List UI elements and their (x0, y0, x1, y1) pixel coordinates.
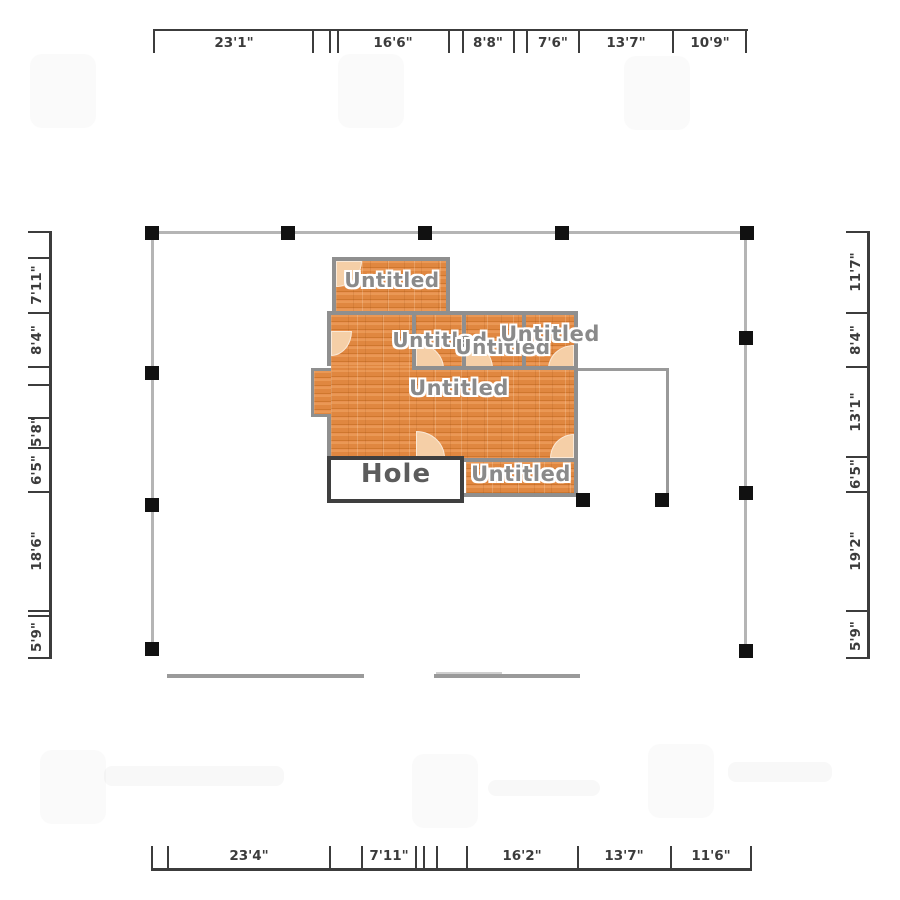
room-label[interactable]: Untitled (409, 376, 509, 400)
annex-wall-line[interactable] (666, 368, 669, 496)
watermark-text (488, 780, 600, 796)
dim-label: 11'7" (848, 237, 864, 307)
dim-label: 13'7" (582, 848, 666, 864)
wall[interactable] (327, 414, 331, 458)
dim-label: 23'4" (207, 848, 291, 864)
dim-label: 13'1" (848, 377, 864, 447)
bottom-wall-segment[interactable] (434, 674, 580, 678)
selection-handle[interactable] (145, 226, 159, 240)
dim-tick (312, 29, 314, 53)
dim-label: 5'9" (29, 602, 45, 672)
dim-tick (28, 231, 50, 233)
wall[interactable] (446, 257, 450, 313)
dim-label: 23'1" (192, 35, 276, 51)
dim-label: 16'2" (480, 848, 564, 864)
wall[interactable] (332, 257, 450, 261)
room-floor-main-protrusion[interactable] (314, 371, 331, 414)
dim-label: 8'4" (29, 305, 45, 375)
dim-tick (167, 846, 169, 868)
selection-handle[interactable] (739, 644, 753, 658)
dim-tick (436, 846, 438, 868)
bottom-wall-segment[interactable] (167, 674, 364, 678)
selection-handle[interactable] (740, 226, 754, 240)
watermark-text (728, 762, 832, 782)
watermark-logo (412, 754, 478, 828)
dim-label: 13'7" (584, 35, 668, 51)
floorplan-canvas: 23'1" 16'6" 8'8" 7'6" 13'7" 10'9" 23'4" … (0, 0, 900, 900)
dim-label: 7'11" (347, 848, 431, 864)
selection-handle[interactable] (145, 642, 159, 656)
wall[interactable] (412, 366, 574, 370)
dim-baseline (49, 231, 52, 659)
selection-line-left[interactable] (151, 231, 154, 645)
dim-tick (466, 846, 468, 868)
dim-baseline (153, 29, 748, 31)
wall[interactable] (332, 257, 336, 313)
watermark-logo (648, 744, 714, 818)
dim-label: 8'4" (848, 305, 864, 375)
room-label[interactable]: Untitled (471, 462, 571, 486)
room-label[interactable]: Untitled (344, 268, 439, 292)
selection-handle[interactable] (655, 493, 669, 507)
dim-label: 6'5" (848, 439, 864, 509)
watermark-logo (338, 54, 404, 128)
dim-label: 16'6" (351, 35, 435, 51)
wall[interactable] (464, 493, 576, 497)
dim-label: 18'6" (29, 516, 45, 586)
dim-tick (151, 846, 153, 868)
room-label[interactable]: Untitled (500, 322, 600, 346)
selection-handle[interactable] (576, 493, 590, 507)
watermark-logo (624, 56, 690, 130)
annex-wall-line[interactable] (576, 368, 668, 371)
selection-line-top[interactable] (151, 231, 749, 234)
hole-label[interactable]: Hole (361, 459, 431, 489)
dim-tick (846, 231, 868, 233)
selection-handle[interactable] (739, 486, 753, 500)
selection-handle[interactable] (145, 366, 159, 380)
dim-tick (153, 29, 155, 53)
dim-baseline (151, 868, 752, 871)
dim-label: 19'2" (848, 516, 864, 586)
selection-line-right[interactable] (744, 231, 747, 647)
dim-label: 6'5" (29, 435, 45, 505)
selection-handle[interactable] (418, 226, 432, 240)
dim-tick (577, 846, 579, 868)
dim-label: 5'9" (848, 601, 864, 671)
dim-baseline (867, 231, 870, 659)
selection-handle[interactable] (739, 331, 753, 345)
selection-handle[interactable] (145, 498, 159, 512)
wall[interactable] (311, 368, 314, 417)
dim-label: 11'6" (669, 848, 753, 864)
dim-tick (329, 29, 331, 53)
bottom-wall-segment (436, 672, 502, 674)
dim-label: 7'6" (511, 35, 595, 51)
dim-tick (329, 846, 331, 868)
wall[interactable] (327, 311, 331, 366)
dim-label: 10'9" (668, 35, 752, 51)
dim-tick (337, 29, 339, 53)
wall[interactable] (311, 368, 331, 371)
dim-tick (28, 384, 50, 386)
wall[interactable] (327, 311, 578, 315)
watermark-text (104, 766, 284, 786)
watermark-logo (40, 750, 106, 824)
selection-handle[interactable] (281, 226, 295, 240)
watermark-logo (30, 54, 96, 128)
selection-handle[interactable] (555, 226, 569, 240)
